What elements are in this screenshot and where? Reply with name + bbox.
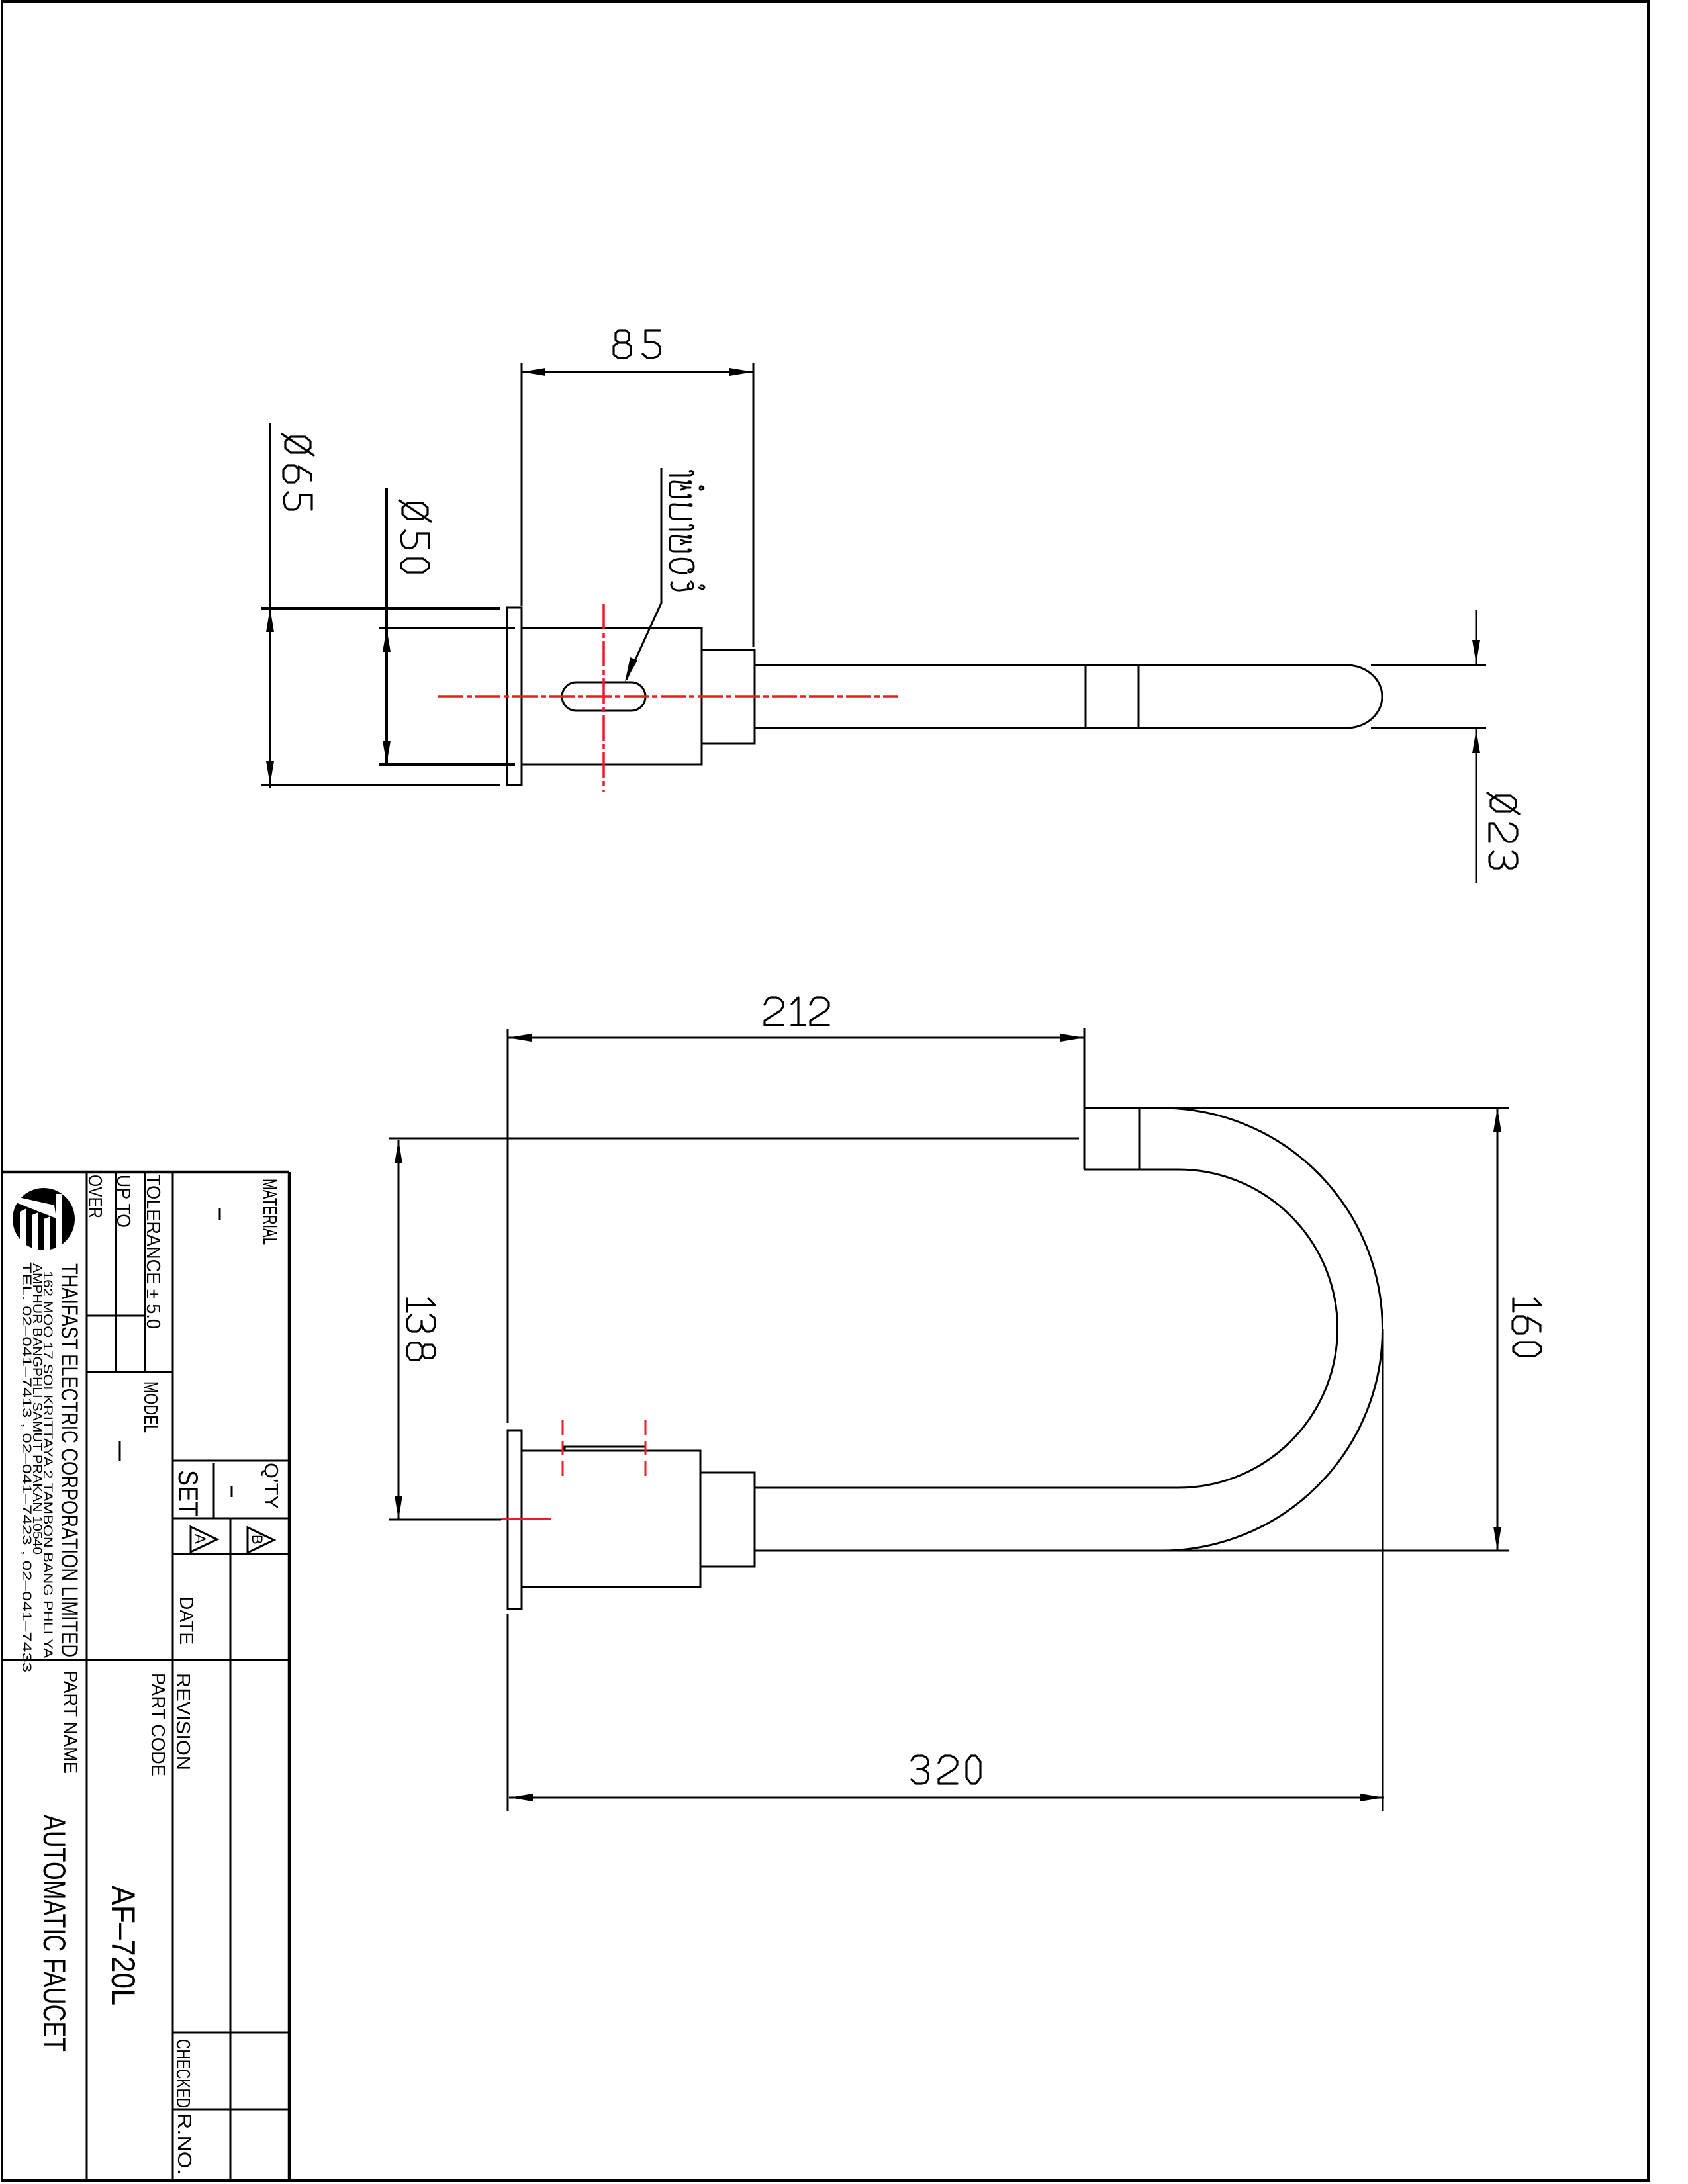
svg-text:CHECKED: CHECKED [172, 2039, 193, 2108]
svg-text:PART CODE: PART CODE [147, 1673, 168, 1776]
svg-text:DATE: DATE [175, 1596, 197, 1645]
svg-text:MATERIAL: MATERIAL [259, 1179, 280, 1245]
svg-text:TEL. 02–041–7413 , 02–041–7423: TEL. 02–041–7413 , 02–041–7423 , 02–041–… [19, 1262, 33, 1672]
svg-text:Q’TY: Q’TY [260, 1463, 281, 1509]
svg-text:UP TO: UP TO [113, 1175, 134, 1228]
svg-text:THAIFAST ELECTRIC CORPORATION: THAIFAST ELECTRIC CORPORATION LIMITED [56, 1263, 82, 1657]
svg-text:REVISION: REVISION [172, 1673, 193, 1770]
svg-text:AF–720L: AF–720L [105, 1886, 142, 2005]
svg-text:TOLERANCE ± 5.0: TOLERANCE ± 5.0 [142, 1175, 164, 1329]
svg-text:OVER: OVER [84, 1175, 105, 1218]
svg-text:A: A [192, 1534, 209, 1544]
svg-text:R.NO.: R.NO. [173, 2113, 195, 2175]
svg-text:SET: SET [173, 1470, 204, 1516]
svg-text:MODEL: MODEL [140, 1381, 161, 1433]
svg-text:B: B [249, 1535, 265, 1545]
svg-text:PART NAME: PART NAME [60, 1670, 81, 1774]
svg-text:AUTOMATIC FAUCET: AUTOMATIC FAUCET [37, 1815, 72, 2052]
